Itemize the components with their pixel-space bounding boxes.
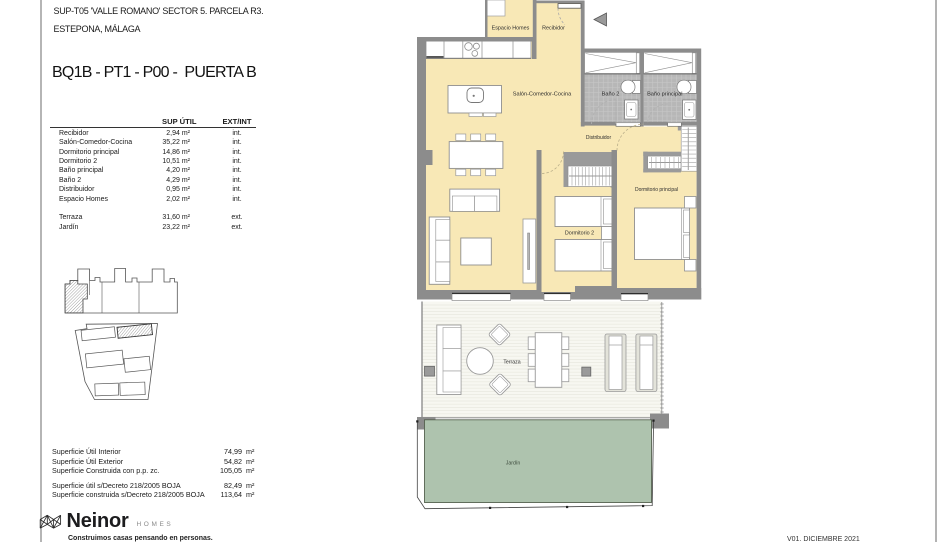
svg-text:Salón-Comedor-Cocina: Salón-Comedor-Cocina: [513, 91, 572, 97]
svg-text:Dormitorio 2: Dormitorio 2: [565, 230, 594, 236]
svg-text:Espacio Homes: Espacio Homes: [492, 26, 530, 32]
svg-text:Baño 2: Baño 2: [602, 92, 620, 98]
svg-text:Recibidor: Recibidor: [542, 26, 565, 32]
svg-text:Distribuidor: Distribuidor: [586, 135, 612, 141]
svg-text:Baño principal: Baño principal: [647, 92, 682, 98]
svg-text:Terraza: Terraza: [503, 360, 520, 366]
svg-text:Dormitorio principal: Dormitorio principal: [635, 187, 678, 193]
svg-text:Jardín: Jardín: [506, 461, 521, 467]
